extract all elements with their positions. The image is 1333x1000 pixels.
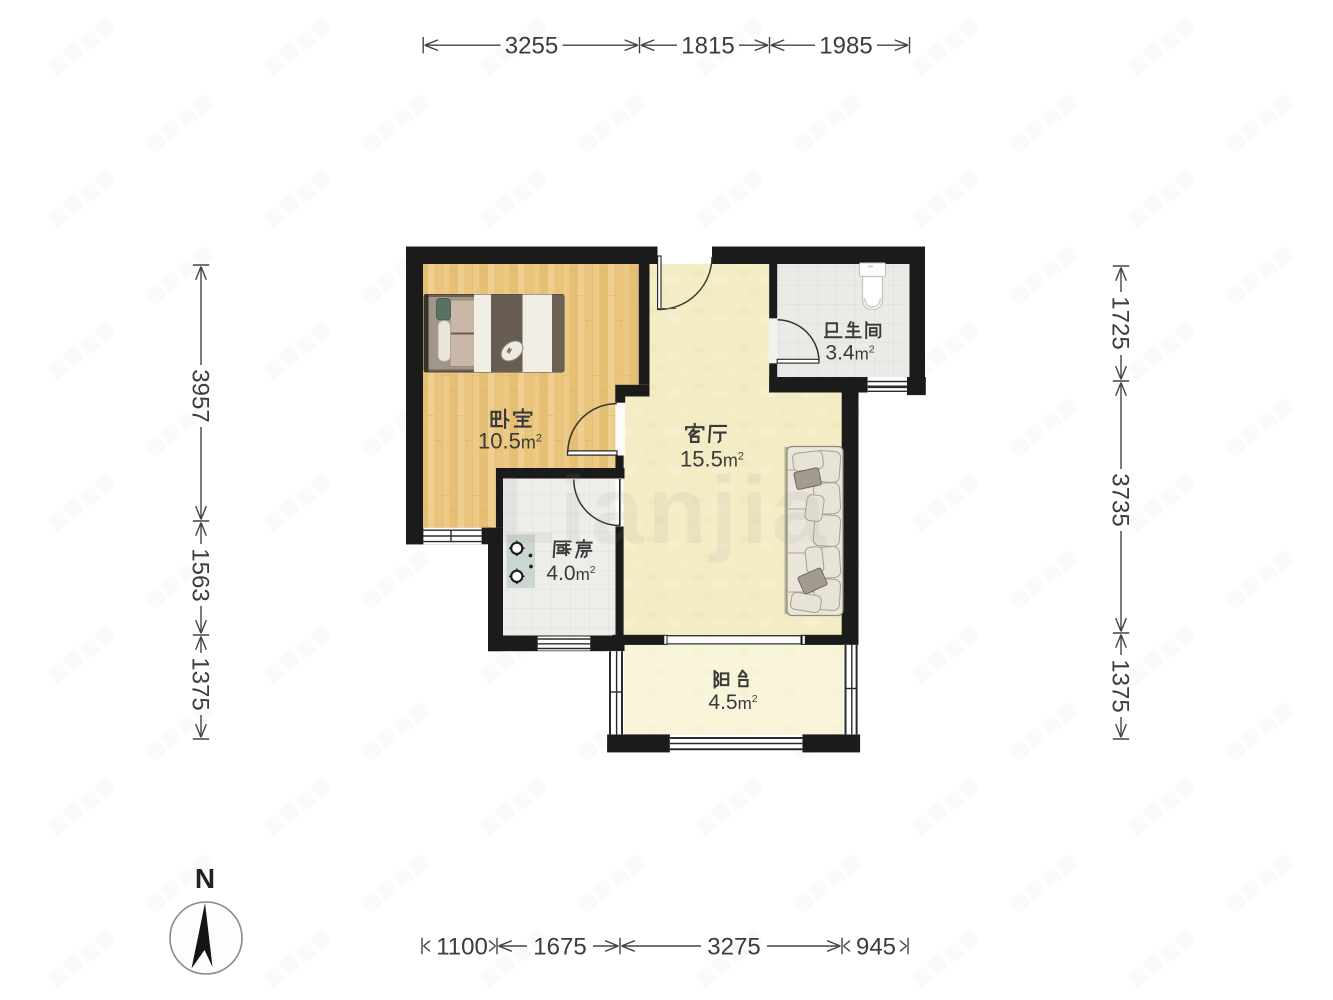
svg-text:1985: 1985	[819, 33, 872, 60]
svg-text:3735: 3735	[1107, 473, 1134, 526]
svg-text:Lianjia: Lianjia	[497, 457, 829, 564]
svg-text:1725: 1725	[1107, 296, 1134, 349]
svg-text:3957: 3957	[187, 369, 214, 422]
svg-text:3255: 3255	[505, 33, 558, 60]
svg-text:N: N	[195, 863, 215, 894]
svg-text:3.4m2: 3.4m2	[825, 342, 874, 365]
svg-text:945: 945	[856, 933, 896, 960]
svg-text:1100: 1100	[436, 933, 488, 960]
svg-text:4.5m2: 4.5m2	[708, 691, 757, 714]
svg-text:1375: 1375	[1107, 659, 1134, 712]
svg-text:1675: 1675	[533, 933, 586, 960]
svg-text:4.0m2: 4.0m2	[546, 562, 595, 585]
svg-text:3275: 3275	[707, 933, 760, 960]
svg-text:1563: 1563	[187, 548, 214, 601]
svg-text:10.5m2: 10.5m2	[478, 429, 542, 454]
svg-text:1375: 1375	[187, 657, 214, 710]
svg-text:1815: 1815	[681, 33, 734, 60]
